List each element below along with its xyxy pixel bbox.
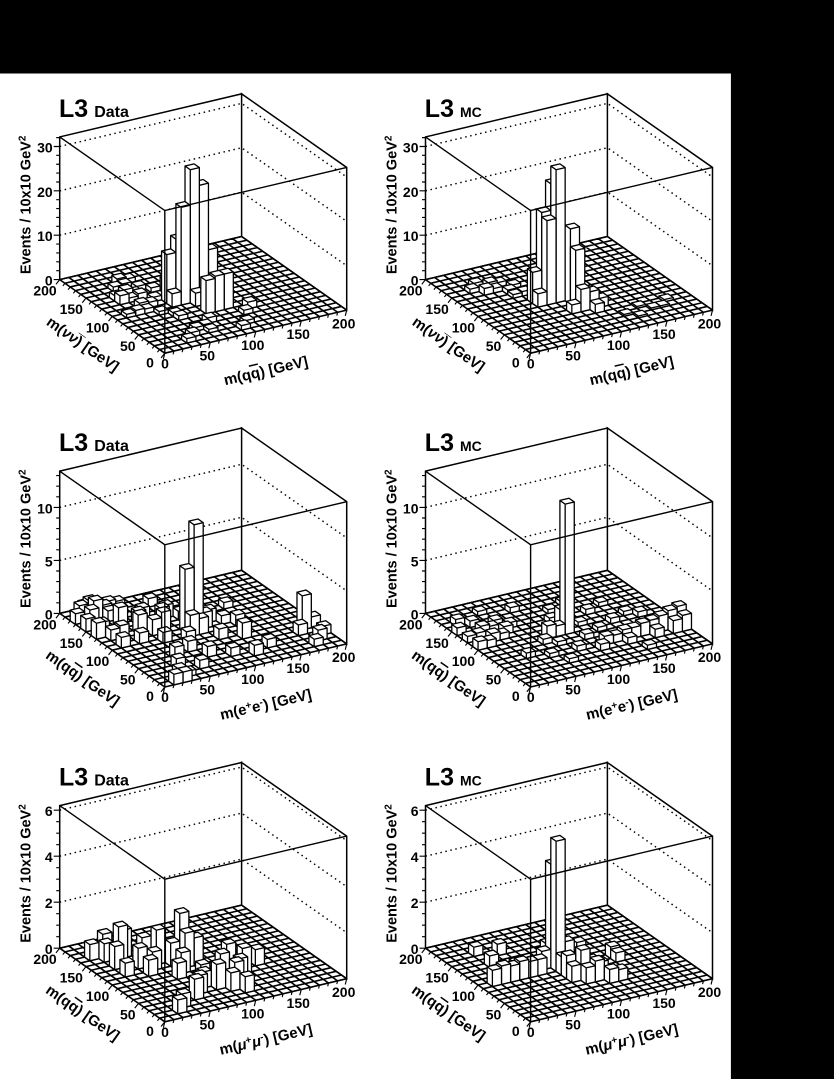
svg-text:200: 200 xyxy=(332,649,356,665)
svg-text:50: 50 xyxy=(199,682,215,698)
svg-text:200: 200 xyxy=(698,649,722,665)
svg-text:200: 200 xyxy=(399,951,423,967)
svg-text:Events / 10x10 GeV2: Events / 10x10 GeV2 xyxy=(18,135,35,274)
svg-text:100: 100 xyxy=(607,671,631,687)
svg-text:200: 200 xyxy=(33,616,57,632)
svg-text:50: 50 xyxy=(120,1006,136,1022)
svg-text:10: 10 xyxy=(37,500,53,516)
svg-text:100: 100 xyxy=(86,988,110,1004)
svg-text:50: 50 xyxy=(565,348,581,364)
svg-text:5: 5 xyxy=(45,553,53,569)
svg-text:6: 6 xyxy=(45,803,53,819)
svg-text:0: 0 xyxy=(161,355,169,371)
svg-text:20: 20 xyxy=(37,184,53,200)
svg-text:50: 50 xyxy=(199,348,215,364)
svg-text:200: 200 xyxy=(33,951,57,967)
svg-text:50: 50 xyxy=(486,338,502,354)
svg-text:Events / 10x10 GeV2: Events / 10x10 GeV2 xyxy=(383,469,400,608)
svg-text:50: 50 xyxy=(486,1006,502,1022)
svg-text:50: 50 xyxy=(199,1016,215,1032)
svg-text:150: 150 xyxy=(652,995,676,1011)
svg-text:5: 5 xyxy=(411,553,419,569)
svg-text:Events / 10x10 GeV2: Events / 10x10 GeV2 xyxy=(18,804,35,943)
svg-text:2: 2 xyxy=(45,895,53,911)
svg-text:200: 200 xyxy=(33,283,57,299)
svg-text:150: 150 xyxy=(425,301,449,317)
svg-text:4: 4 xyxy=(45,849,53,865)
svg-text:100: 100 xyxy=(241,671,265,687)
svg-text:0: 0 xyxy=(161,689,169,705)
svg-text:100: 100 xyxy=(607,337,631,353)
svg-text:200: 200 xyxy=(399,283,423,299)
svg-text:150: 150 xyxy=(287,326,311,342)
svg-text:50: 50 xyxy=(120,338,136,354)
svg-text:50: 50 xyxy=(565,1016,581,1032)
svg-text:10: 10 xyxy=(403,500,419,516)
svg-text:200: 200 xyxy=(698,315,722,331)
svg-text:0: 0 xyxy=(146,1023,154,1039)
svg-text:30: 30 xyxy=(37,139,53,155)
svg-text:Events / 10x10 GeV2: Events / 10x10 GeV2 xyxy=(18,469,35,608)
svg-text:150: 150 xyxy=(652,326,676,342)
svg-text:10: 10 xyxy=(403,228,419,244)
svg-text:100: 100 xyxy=(86,653,110,669)
svg-text:50: 50 xyxy=(486,672,502,688)
svg-text:0: 0 xyxy=(512,354,520,370)
svg-text:2: 2 xyxy=(411,895,419,911)
svg-text:200: 200 xyxy=(698,984,722,1000)
svg-text:30: 30 xyxy=(403,139,419,155)
svg-text:100: 100 xyxy=(607,1006,631,1022)
svg-text:100: 100 xyxy=(241,337,265,353)
svg-text:100: 100 xyxy=(452,988,476,1004)
svg-text:100: 100 xyxy=(452,653,476,669)
svg-text:150: 150 xyxy=(287,660,311,676)
svg-text:0: 0 xyxy=(146,354,154,370)
svg-text:100: 100 xyxy=(241,1006,265,1022)
svg-text:50: 50 xyxy=(120,672,136,688)
svg-text:0: 0 xyxy=(512,1023,520,1039)
svg-text:200: 200 xyxy=(332,984,356,1000)
svg-text:Events / 10x10 GeV2: Events / 10x10 GeV2 xyxy=(383,135,400,274)
svg-text:50: 50 xyxy=(565,682,581,698)
svg-text:0: 0 xyxy=(512,688,520,704)
svg-text:150: 150 xyxy=(652,660,676,676)
svg-text:4: 4 xyxy=(411,849,419,865)
svg-text:Events / 10x10 GeV2: Events / 10x10 GeV2 xyxy=(383,804,400,943)
svg-text:20: 20 xyxy=(403,184,419,200)
svg-text:150: 150 xyxy=(60,301,84,317)
svg-text:0: 0 xyxy=(527,1024,535,1040)
svg-text:6: 6 xyxy=(411,803,419,819)
svg-text:150: 150 xyxy=(287,995,311,1011)
svg-text:150: 150 xyxy=(425,635,449,651)
svg-text:100: 100 xyxy=(452,319,476,335)
svg-text:100: 100 xyxy=(86,319,110,335)
svg-text:0: 0 xyxy=(161,1024,169,1040)
svg-text:10: 10 xyxy=(37,228,53,244)
svg-text:150: 150 xyxy=(425,970,449,986)
svg-text:200: 200 xyxy=(332,315,356,331)
svg-text:0: 0 xyxy=(527,355,535,371)
svg-text:0: 0 xyxy=(527,689,535,705)
svg-text:150: 150 xyxy=(60,635,84,651)
svg-text:0: 0 xyxy=(146,688,154,704)
svg-text:200: 200 xyxy=(399,616,423,632)
svg-text:150: 150 xyxy=(60,970,84,986)
